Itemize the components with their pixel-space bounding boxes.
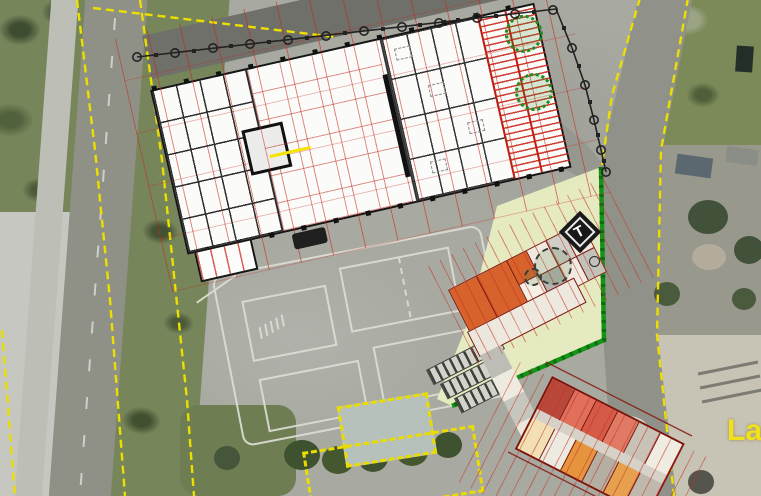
existing-tree-outline	[524, 268, 542, 286]
aerial-site-plan: T La	[0, 0, 761, 496]
place-label: La	[727, 414, 761, 448]
transformer-symbol-label: T	[572, 223, 587, 241]
survey-point-circle	[589, 256, 600, 267]
survey-grid-line	[0, 0, 761, 200]
